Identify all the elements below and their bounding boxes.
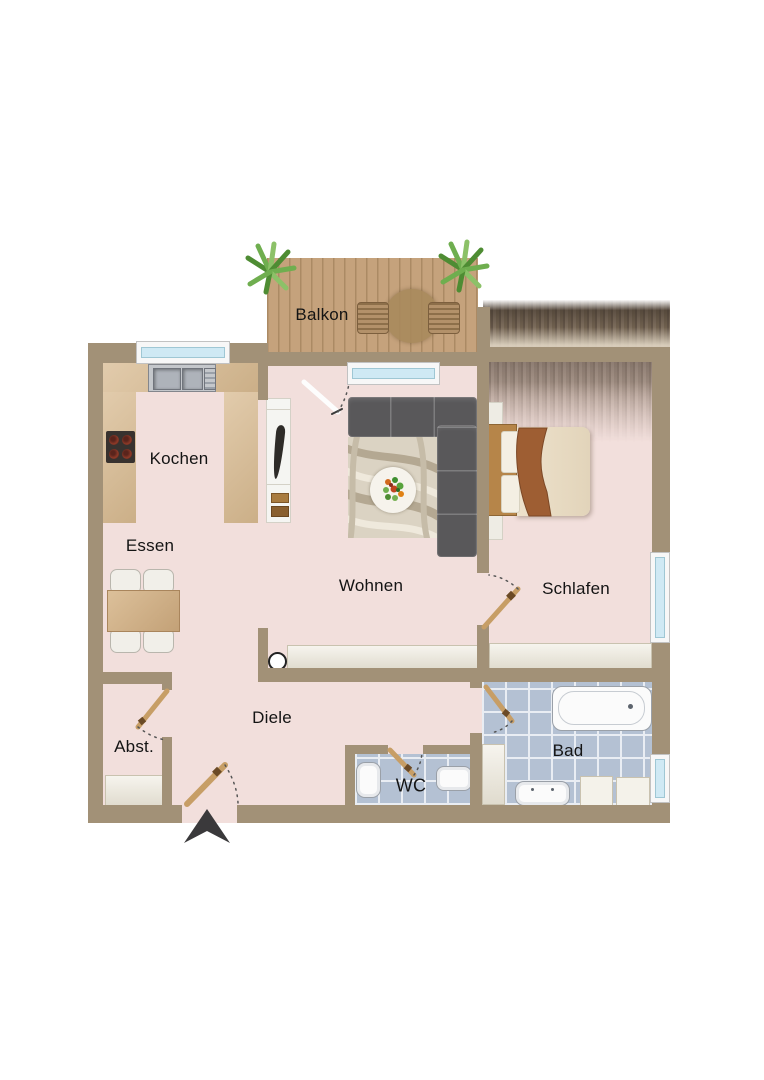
room-label-kochen: Kochen: [150, 449, 209, 469]
bedroom-sideboard: [489, 643, 652, 670]
room-label-abst: Abst.: [114, 737, 154, 757]
kitchen-window: [136, 341, 230, 364]
wall-bottom: [237, 805, 670, 823]
room-label-wohnen: Wohnen: [339, 576, 403, 596]
bed: [515, 427, 590, 516]
stove: [106, 431, 135, 463]
burner: [122, 449, 132, 459]
sink-basin: [182, 368, 203, 390]
wall-storage-right: [162, 737, 172, 805]
wall-wc-left: [345, 745, 355, 805]
bath-washbasin: [515, 781, 570, 806]
sink-drainer: [204, 368, 216, 390]
wall-stub-hall: [258, 628, 268, 668]
wall-bottom: [88, 805, 182, 823]
wall-living-bedroom: [477, 625, 489, 668]
wall-storage-right: [162, 684, 172, 690]
room-label-balkon: Balkon: [295, 305, 348, 325]
faucet-dot: [531, 788, 534, 791]
coat-stand: [271, 425, 286, 480]
room-label-schlafen: Schlafen: [542, 579, 610, 599]
wall-connector: [477, 307, 490, 362]
bath-cabinet: [616, 777, 650, 806]
kitchen-tall-cabinet: [266, 398, 291, 523]
wall-wc-bath: [470, 682, 482, 688]
room-label-bad: Bad: [553, 741, 584, 761]
kitchen-sink: [148, 364, 216, 392]
wall-mid-horizontal: [258, 668, 652, 682]
floor-plan: Balkon Kochen Essen Wohnen Schlafen Diel…: [0, 0, 764, 1080]
sofa-section-vertical: [437, 425, 477, 557]
wall-left: [88, 343, 103, 823]
entrance-floor: [182, 805, 237, 823]
wall-stub-kitchen: [258, 343, 268, 400]
shelf-line: [267, 484, 290, 485]
balcony-door-window: [347, 362, 440, 385]
bath-cabinet: [580, 776, 613, 806]
shelf-items: [271, 506, 289, 517]
bath-window: [650, 754, 670, 803]
kitchen-counter-right: [224, 392, 258, 523]
bed-pillow: [501, 475, 520, 513]
hall-sideboard: [287, 645, 479, 670]
sink-basin: [153, 368, 181, 390]
room-label-essen: Essen: [126, 536, 174, 556]
balcony-chair: [357, 302, 389, 334]
awning-texture: [483, 300, 670, 347]
coffee-table: [370, 467, 416, 513]
wc-washbasin: [436, 766, 472, 791]
room-label-wc: WC: [396, 776, 426, 797]
shelf-items: [271, 493, 289, 503]
wall-living-bedroom: [477, 362, 489, 573]
bed-pillow: [501, 431, 520, 473]
faucet-dot: [551, 788, 554, 791]
wall-top-bedroom: [477, 347, 670, 362]
burner: [109, 449, 119, 459]
bathtub-drain: [628, 704, 633, 709]
storage-shelf: [105, 775, 164, 807]
toilet: [356, 762, 381, 798]
bathtub: [552, 686, 652, 731]
wall-wc-top: [423, 745, 470, 754]
burner: [109, 435, 119, 445]
wall-wc-bath: [470, 733, 482, 805]
wall-storage-top: [88, 672, 172, 684]
balcony-chair: [428, 302, 460, 334]
bath-cabinet-tall: [482, 744, 505, 805]
wall-wc-top: [345, 745, 388, 754]
shelf-line: [267, 409, 290, 410]
burner: [122, 435, 132, 445]
room-label-diele: Diele: [252, 708, 292, 728]
dining-table: [107, 590, 180, 632]
bedroom-window: [650, 552, 670, 643]
